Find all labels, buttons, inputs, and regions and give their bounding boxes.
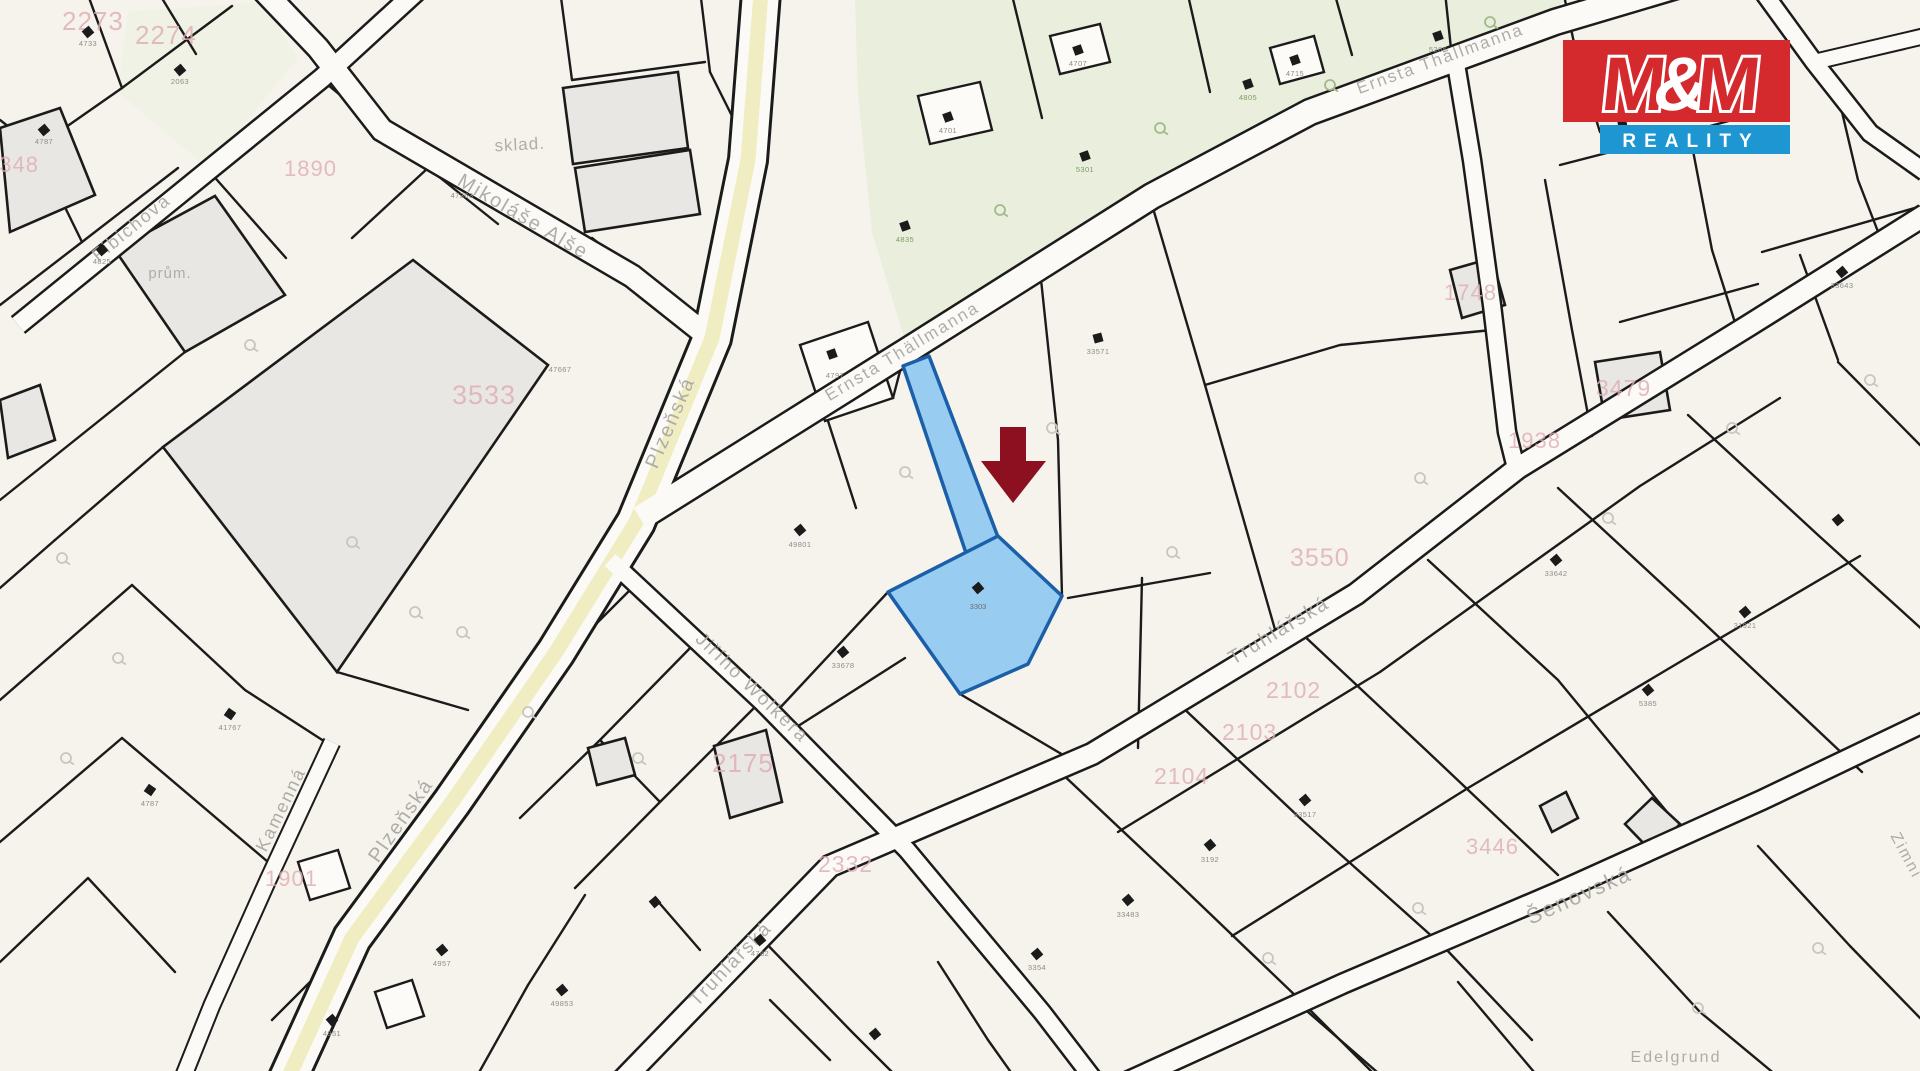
parcel-number-pink: 2104 bbox=[1154, 763, 1209, 789]
parcel-number: 5301 bbox=[1076, 165, 1094, 174]
parcel-number: 33483 bbox=[1117, 910, 1140, 919]
parcel-number-pink: 3533 bbox=[452, 380, 516, 410]
cadastral-map[interactable]: Fibichova Mikoláše Alše Plzeňská Plzeňsk… bbox=[0, 0, 1920, 1071]
parcel-number: 31921 bbox=[1734, 621, 1757, 630]
parcel-number: 33678 bbox=[832, 661, 855, 670]
parcel-number-pink: 1901 bbox=[265, 866, 318, 891]
parcel-number: 33517 bbox=[1294, 810, 1317, 819]
area-label-prum: prům. bbox=[148, 265, 191, 282]
parcel-number: 4787 bbox=[35, 137, 53, 146]
parcel-number: 33642 bbox=[1545, 569, 1568, 578]
parcel-number: 5265 bbox=[1429, 45, 1447, 54]
parcel-number: 33571 bbox=[1087, 347, 1110, 356]
parcel-number: 4825 bbox=[93, 257, 111, 266]
parcel-number: 4951 bbox=[323, 1029, 341, 1038]
parcel-number-pink: 3479 bbox=[1596, 375, 1651, 401]
parcel-number-pink: 2175 bbox=[712, 748, 774, 778]
parcel-number-pink: 1890 bbox=[284, 156, 337, 181]
parcel-number: 4707 bbox=[1069, 59, 1087, 68]
parcel-number-pink: 1748 bbox=[1444, 280, 1497, 305]
parcel-number: 49853 bbox=[551, 999, 574, 1008]
parcel-number: 49801 bbox=[789, 540, 812, 549]
parcel-number: 2063 bbox=[171, 77, 189, 86]
parcel-number: 47363 bbox=[451, 191, 474, 200]
logo-reality-text: REALITY bbox=[1622, 131, 1759, 152]
parcel-number: 3354 bbox=[1028, 963, 1046, 972]
parcel-number: 4733 bbox=[79, 39, 97, 48]
parcel-number: 41767 bbox=[219, 723, 242, 732]
parcel-number: 4797 bbox=[826, 371, 844, 380]
parcel-number: 33643 bbox=[1831, 281, 1854, 290]
parcel-number-pink: 2348 bbox=[0, 152, 39, 177]
parcel-number: 3192 bbox=[1201, 855, 1219, 864]
parcel-number: 4787 bbox=[141, 799, 159, 808]
parcel-number-pink: 2332 bbox=[818, 851, 873, 877]
parcel-number-pink: 3446 bbox=[1466, 834, 1519, 859]
logo-mm-text: M&M bbox=[1598, 42, 1760, 127]
parcel-number: 5385 bbox=[1639, 699, 1657, 708]
parcel-number: 4762 bbox=[751, 949, 769, 958]
parcel-number-pink: 2102 bbox=[1266, 677, 1321, 703]
parcel-number: 4715 bbox=[1286, 69, 1304, 78]
street-label-edelgrund: Edelgrund bbox=[1631, 1049, 1722, 1066]
parcel-number: 47667 bbox=[549, 365, 572, 374]
cadastral-map-canvas[interactable]: Fibichova Mikoláše Alše Plzeňská Plzeňsk… bbox=[0, 0, 1920, 1071]
parcel-number-pink: 1938 bbox=[1508, 428, 1561, 453]
building-footprint bbox=[563, 72, 688, 164]
area-label-sklad: sklad. bbox=[494, 134, 545, 156]
logo-m-right: M bbox=[1692, 42, 1760, 127]
parcel-number-pink: 2274 bbox=[135, 20, 197, 50]
parcel-number: 4701 bbox=[939, 126, 957, 135]
building-footprint bbox=[588, 738, 635, 785]
highlight-parcel-number: 3303 bbox=[970, 602, 987, 611]
parcel-number: 4957 bbox=[433, 959, 451, 968]
parcel-number-pink: 2103 bbox=[1222, 719, 1277, 745]
parcel-number-pink: 3550 bbox=[1290, 544, 1350, 572]
parcel-number: 4805 bbox=[1239, 93, 1257, 102]
parcel-number: 4835 bbox=[896, 235, 914, 244]
